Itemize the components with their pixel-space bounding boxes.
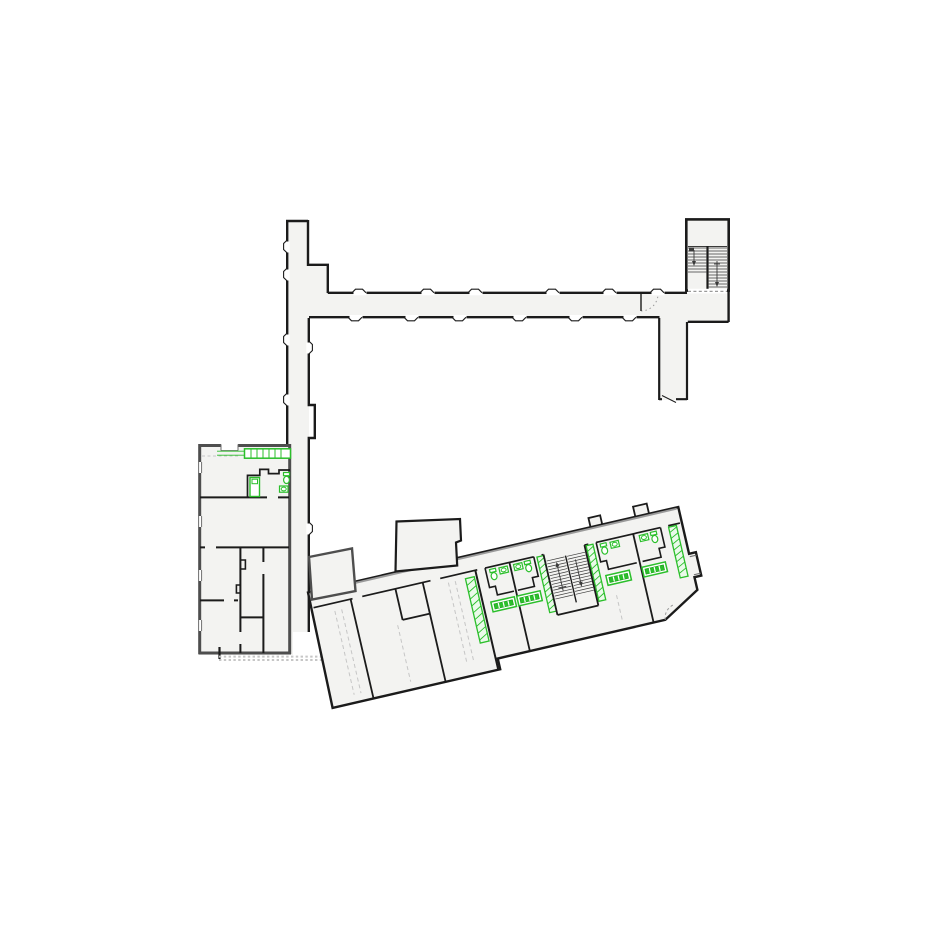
sink-icon — [610, 540, 620, 548]
protruding-room — [396, 519, 462, 572]
stair-arrow-start-block — [689, 248, 694, 252]
floor-plan-page — [0, 0, 925, 925]
wall-recess — [221, 442, 238, 451]
tall-cabinet — [250, 478, 260, 497]
sink-icon — [513, 563, 523, 571]
west-block-floor — [198, 444, 293, 655]
sink-icon — [280, 486, 289, 492]
corner-room — [309, 549, 356, 600]
sink-icon — [499, 566, 509, 574]
stairwell-north — [686, 219, 729, 293]
floor-plan-canvas — [0, 0, 925, 925]
east-stub-floor — [659, 318, 688, 400]
page-background — [0, 0, 925, 925]
toilet-icon — [284, 473, 290, 484]
sink-icon — [639, 534, 649, 542]
